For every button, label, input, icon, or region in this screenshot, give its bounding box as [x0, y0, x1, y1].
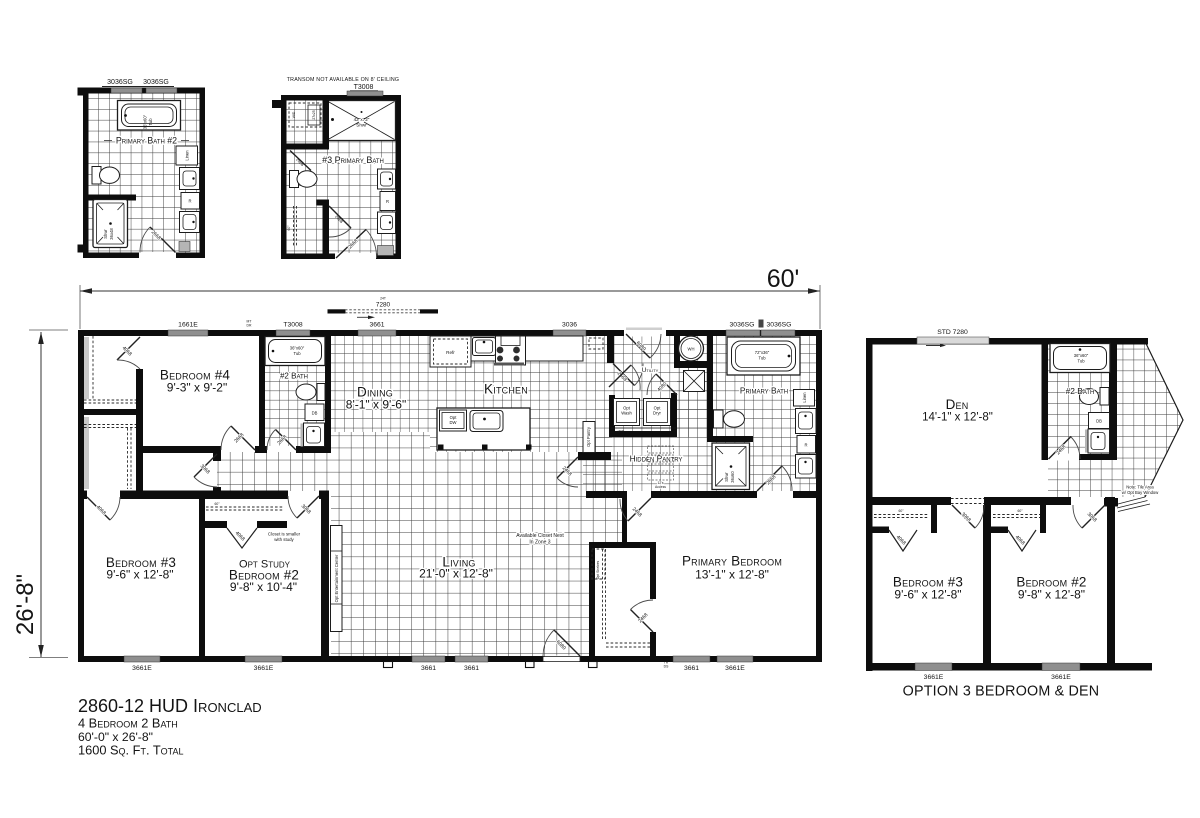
- svg-text:4068: 4068: [234, 530, 246, 542]
- svg-text:Shwr: Shwr: [356, 123, 367, 128]
- svg-text:#2 Bath: #2 Bath: [1066, 386, 1095, 396]
- svg-text:TRANSOM NOT AVAILABLE ON 8' CE: TRANSOM NOT AVAILABLE ON 8' CEILING: [287, 77, 400, 83]
- svg-text:9'-8" x 12'-8": 9'-8" x 12'-8": [1018, 588, 1085, 602]
- svg-text:T3008: T3008: [283, 322, 302, 329]
- svg-text:Closet is smaller: Closet is smaller: [268, 532, 301, 537]
- svg-text:DS: DS: [664, 665, 669, 669]
- svg-text:Tub: Tub: [1077, 359, 1085, 364]
- svg-text:Kitchen: Kitchen: [484, 382, 528, 397]
- svg-text:R: R: [188, 199, 191, 204]
- svg-text:3661: 3661: [421, 665, 436, 672]
- svg-text:W/D: W/D: [292, 111, 296, 118]
- svg-text:R: R: [804, 443, 807, 448]
- svg-text:36"x60": 36"x60": [290, 346, 305, 351]
- svg-text:Opt Entertainment Center: Opt Entertainment Center: [334, 554, 339, 602]
- svg-text:36"x60": 36"x60": [143, 114, 148, 129]
- svg-text:36x48: 36x48: [109, 228, 114, 240]
- svg-text:3661: 3661: [684, 665, 699, 672]
- svg-text:27x25: 27x25: [312, 110, 316, 119]
- svg-text:with study: with study: [274, 537, 294, 542]
- svg-text:60': 60': [767, 265, 800, 293]
- svg-text:Shwr: Shwr: [103, 229, 108, 239]
- svg-text:#2 Bath: #2 Bath: [280, 372, 308, 381]
- svg-text:Utility: Utility: [642, 367, 659, 374]
- svg-text:24T: 24T: [380, 297, 386, 301]
- svg-text:3661E: 3661E: [132, 665, 152, 672]
- svg-text:26'-8": 26'-8": [12, 574, 39, 635]
- svg-text:3661: 3661: [369, 322, 384, 329]
- svg-text:DR: DR: [247, 324, 252, 328]
- svg-text:Tub: Tub: [293, 351, 301, 356]
- svg-text:Primary Bedroom: Primary Bedroom: [682, 554, 782, 569]
- svg-text:WH: WH: [688, 347, 695, 352]
- svg-text:21'-0" x 12'-8": 21'-0" x 12'-8": [419, 567, 493, 581]
- svg-text:DB: DB: [1096, 419, 1102, 424]
- svg-text:Tub: Tub: [758, 356, 766, 361]
- svg-text:w/ Opt Bay Window: w/ Opt Bay Window: [1122, 490, 1160, 495]
- svg-text:T3008: T3008: [354, 84, 374, 91]
- svg-text:Primary Bath: Primary Bath: [740, 386, 788, 396]
- svg-text:8'-1" x 9'-6": 8'-1" x 9'-6": [346, 398, 406, 412]
- svg-text:3036SG: 3036SG: [143, 79, 169, 86]
- svg-text:3036: 3036: [562, 322, 577, 329]
- svg-text:3661E: 3661E: [725, 665, 745, 672]
- svg-text:#3 Primary Bath: #3 Primary Bath: [322, 155, 384, 165]
- svg-text:Available Closet Next: Available Closet Next: [516, 533, 564, 539]
- svg-text:3661E: 3661E: [924, 674, 944, 681]
- svg-text:1600 Sq. Ft. Total: 1600 Sq. Ft. Total: [78, 743, 184, 758]
- svg-text:60": 60": [1018, 509, 1024, 513]
- svg-text:Dryr: Dryr: [653, 411, 662, 416]
- svg-text:60": 60": [287, 225, 291, 231]
- svg-text:36"x60": 36"x60": [1074, 353, 1089, 358]
- svg-text:R: R: [386, 199, 389, 204]
- svg-text:Tub: Tub: [148, 118, 153, 126]
- svg-text:Refr: Refr: [446, 350, 455, 355]
- svg-text:3661E: 3661E: [1051, 674, 1071, 681]
- svg-text:Opt Shelves: Opt Shelves: [596, 560, 600, 579]
- svg-text:9'-8" x 10'-4": 9'-8" x 10'-4": [230, 580, 297, 594]
- svg-text:13'-1" x 12'-8": 13'-1" x 12'-8": [695, 568, 769, 582]
- svg-text:36x60: 36x60: [730, 471, 735, 483]
- svg-text:Linen: Linen: [185, 150, 190, 161]
- svg-text:4 Bedroom 2 Bath: 4 Bedroom 2 Bath: [78, 716, 178, 731]
- svg-text:Shwr: Shwr: [724, 472, 729, 482]
- svg-text:3068: 3068: [960, 511, 972, 523]
- svg-text:Access: Access: [655, 485, 666, 489]
- svg-text:72"x36": 72"x36": [755, 350, 770, 355]
- svg-text:Wash: Wash: [621, 411, 632, 416]
- svg-text:3036SG: 3036SG: [107, 79, 133, 86]
- svg-text:60": 60": [899, 509, 905, 513]
- svg-text:60": 60": [215, 502, 221, 506]
- svg-text:3036SG: 3036SG: [730, 322, 755, 329]
- svg-text:Note: Tile Area: Note: Tile Area: [1126, 485, 1154, 490]
- svg-text:7280: 7280: [376, 302, 391, 309]
- svg-text:3661E: 3661E: [254, 665, 274, 672]
- svg-text:9'-6" x 12'-8": 9'-6" x 12'-8": [106, 568, 173, 582]
- svg-text:Den: Den: [946, 397, 969, 412]
- svg-text:2860-12 HUD Ironclad: 2860-12 HUD Ironclad: [78, 696, 262, 716]
- svg-text:14'-1" x 12'-8": 14'-1" x 12'-8": [922, 412, 993, 424]
- svg-text:OPTION 3 BEDROOM & DEN: OPTION 3 BEDROOM & DEN: [903, 684, 1100, 700]
- svg-text:9'-3" x 9'-2": 9'-3" x 9'-2": [167, 381, 227, 395]
- svg-text:DW: DW: [450, 420, 457, 425]
- svg-text:42"x72": 42"x72": [354, 117, 370, 122]
- svg-text:In Zone 3: In Zone 3: [529, 540, 550, 546]
- svg-text:1661E: 1661E: [178, 322, 198, 329]
- svg-text:Linen: Linen: [802, 392, 807, 403]
- svg-text:Primary Bath #2: Primary Bath #2: [116, 136, 177, 146]
- svg-text:4068: 4068: [121, 345, 133, 357]
- svg-text:DB: DB: [312, 411, 318, 416]
- svg-text:STD 7280: STD 7280: [937, 329, 968, 336]
- svg-text:3068: 3068: [199, 463, 211, 475]
- svg-text:W/D: W/D: [618, 430, 625, 434]
- svg-text:Opt Pantry: Opt Pantry: [586, 426, 591, 447]
- svg-text:9'-6" x 12'-8": 9'-6" x 12'-8": [894, 588, 961, 602]
- svg-text:3661: 3661: [464, 665, 479, 672]
- svg-text:3036SG: 3036SG: [767, 322, 792, 329]
